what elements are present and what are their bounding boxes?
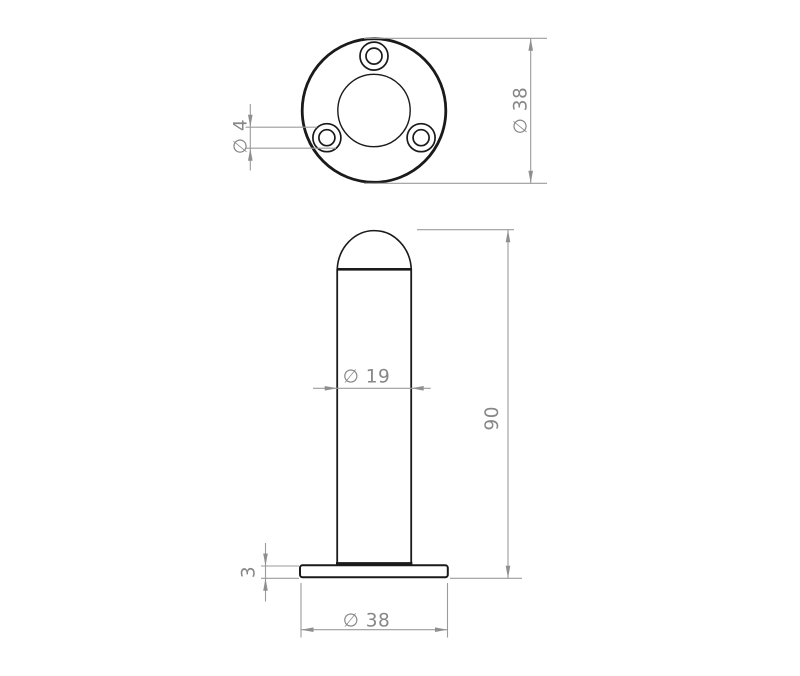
technical-drawing-page: ∅ 38∅ 4∅ 19903∅ 38 [0,0,800,676]
bolt-hole-right-bore [413,130,429,146]
dim-base-thickness-label: 3 [239,566,260,578]
dim-overall-height-label: 90 [482,406,503,431]
dim-bolt-hole-diameter-label: ∅ 4 [231,119,252,154]
dim-flange-diameter-top-view-label: ∅ 38 [511,87,532,135]
base-plate-outline [300,565,448,577]
dim-post-diameter-label: ∅ 19 [343,367,391,388]
post-silhouette-circle [338,74,410,146]
bolt-hole-left-bore [319,130,335,146]
drawing-svg: ∅ 38∅ 4∅ 19903∅ 38 [0,0,800,676]
dim-base-diameter-label: ∅ 38 [343,611,391,632]
top-view [302,39,446,183]
bolt-hole-top-bore [366,48,382,64]
